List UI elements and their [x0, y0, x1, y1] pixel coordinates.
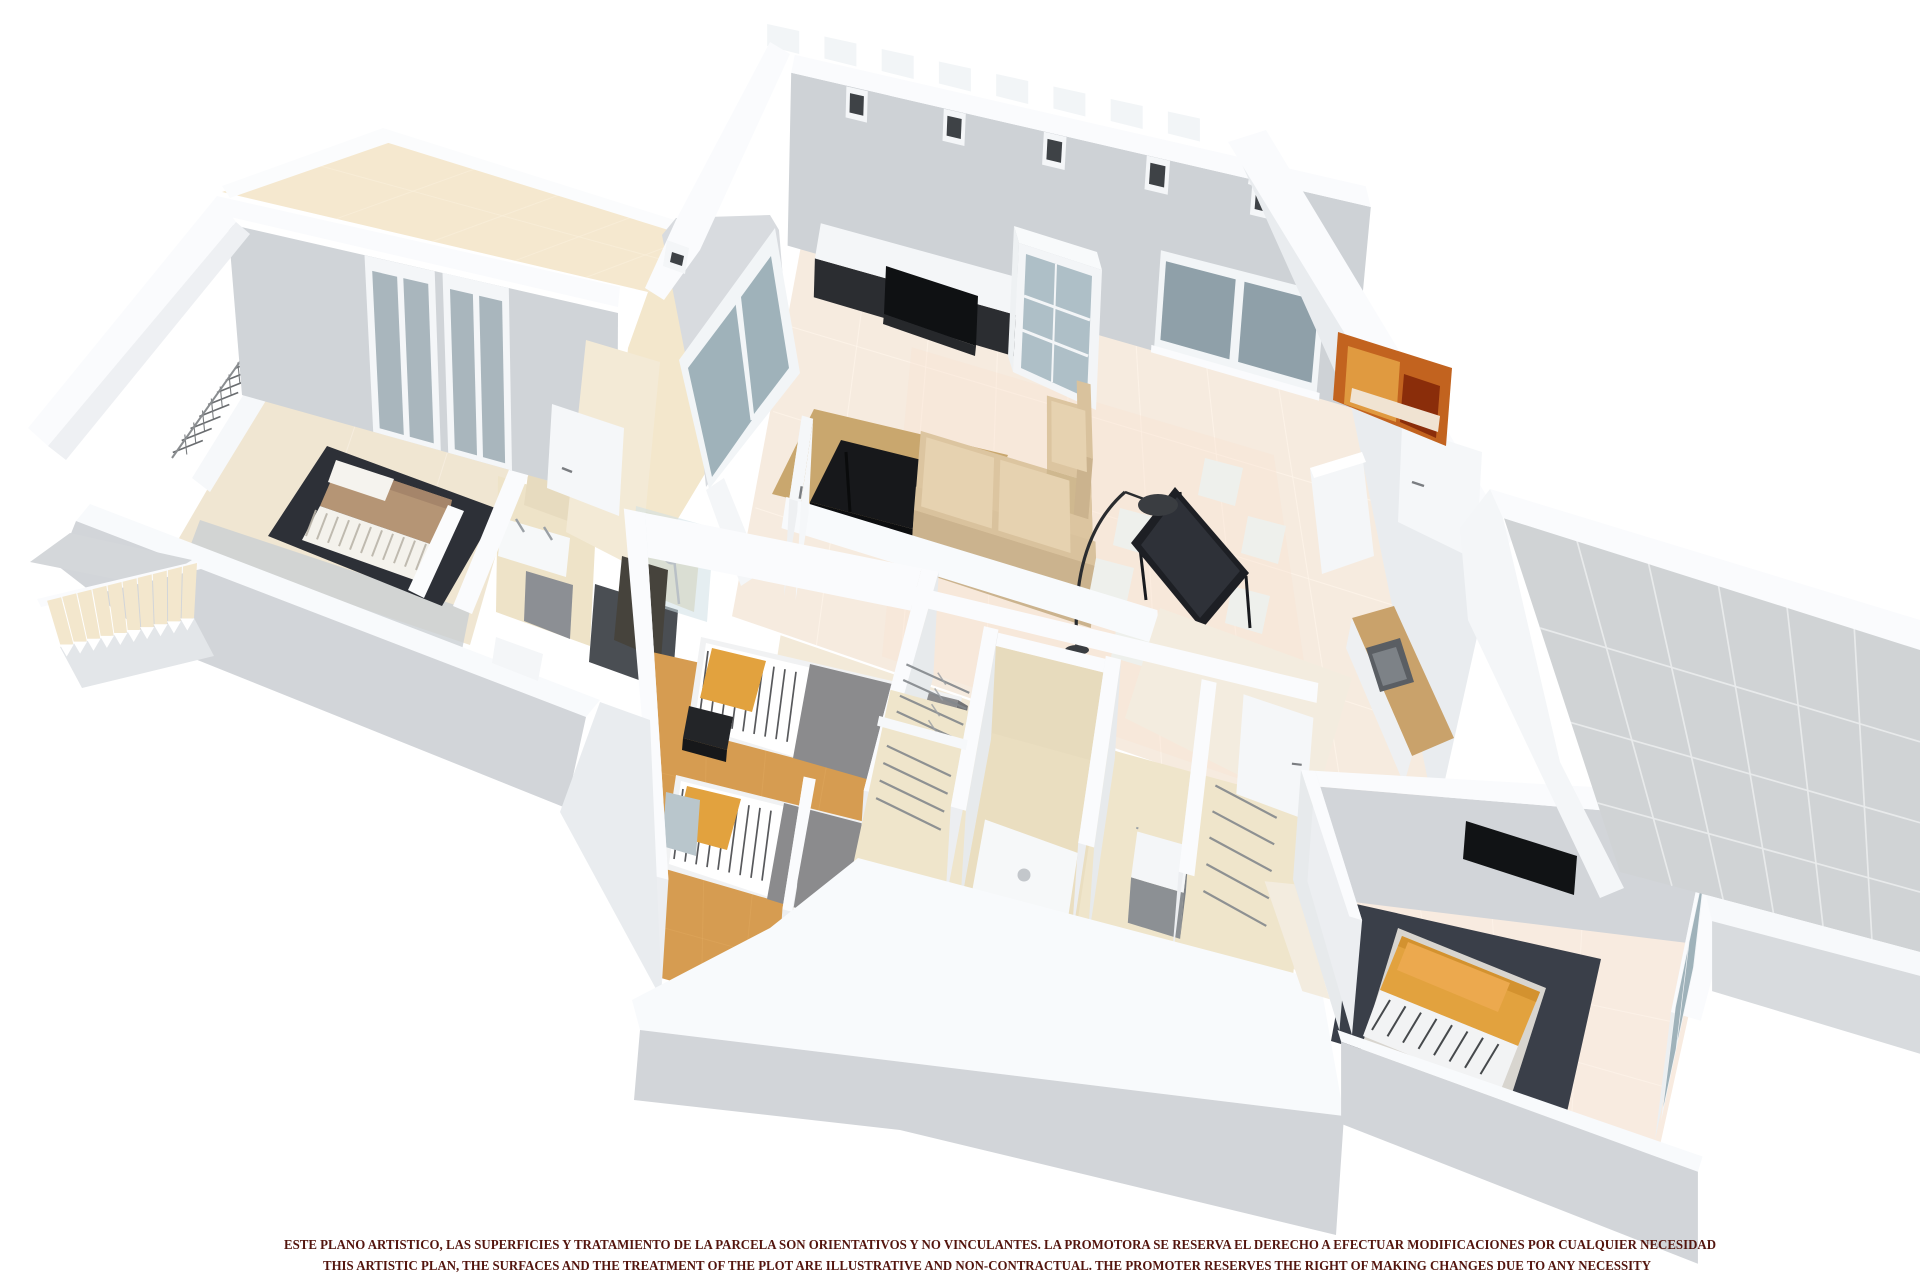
svg-text:ESTE PLANO ARTISTICO, LAS SUPE: ESTE PLANO ARTISTICO, LAS SUPERFICIES Y …: [284, 1237, 1716, 1252]
svg-text:THIS ARTISTIC PLAN, THE SURFAC: THIS ARTISTIC PLAN, THE SURFACES AND THE…: [323, 1258, 1651, 1273]
